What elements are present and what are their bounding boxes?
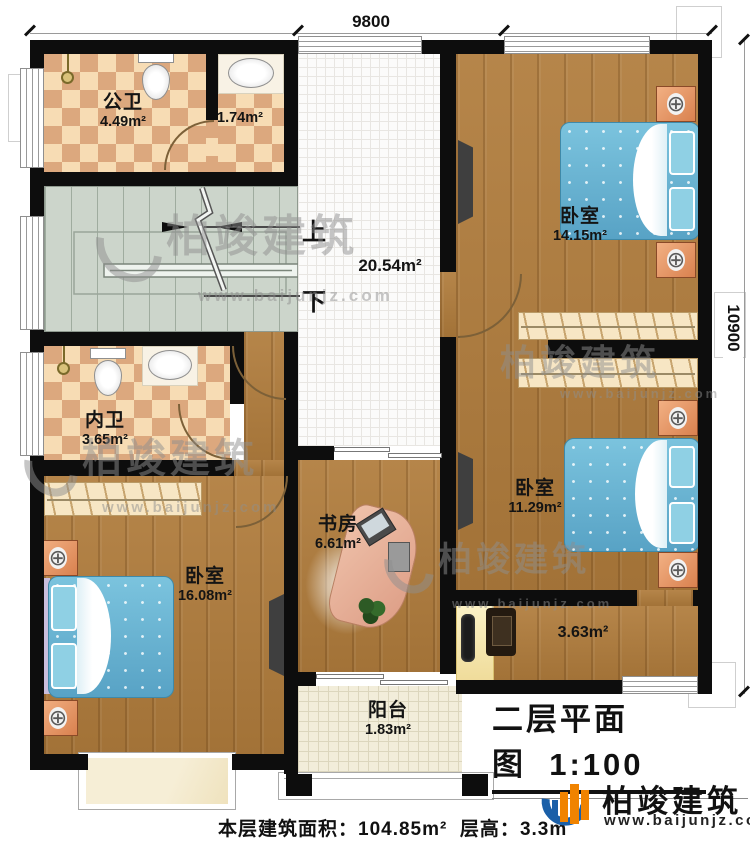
floor-area-label: 本层建筑面积：: [218, 819, 358, 840]
sink-icon: [228, 58, 274, 88]
lamp-icon: ⊕: [669, 559, 687, 581]
logo-building-icon: [581, 790, 589, 820]
dimension-right-value: 10900: [723, 295, 743, 361]
tv-icon: [269, 594, 284, 676]
floor-area-value: 104.85m²: [358, 819, 447, 840]
watermark-brand-name: 柏竣建筑: [82, 437, 258, 481]
watermark-brand-site: www.baijunjz.com: [102, 499, 279, 516]
room-label-dress-corridor: 3.63m²: [538, 624, 628, 642]
dimension-line-right: [744, 40, 745, 694]
room-area: 14.15m²: [524, 228, 636, 245]
room-label-bedroom-right: 卧室 11.29m²: [478, 478, 592, 517]
wall: [284, 332, 298, 346]
room-area: 16.08m²: [148, 588, 262, 605]
watermark-brand-site: www.baijunjz.com: [452, 596, 612, 611]
nightstand: ⊕: [656, 242, 696, 278]
room-area: 3.63m²: [538, 624, 628, 642]
blanket: [77, 578, 111, 694]
logo-building-icon: [552, 800, 558, 818]
wall: [284, 54, 298, 172]
nightstand: ⊕: [38, 700, 78, 736]
watermark: 柏竣建筑 www.baijunjz.com: [500, 334, 720, 401]
room-name: 公卫: [68, 92, 178, 114]
sink-icon: [148, 350, 192, 380]
watermark: 柏竣建筑 www.baijunjz.com: [98, 200, 393, 306]
room-area: 11.29m²: [478, 500, 592, 517]
room-label-public-bath: 公卫 4.49m²: [68, 92, 178, 131]
room-name: 书房: [282, 514, 394, 536]
wall: [30, 40, 298, 54]
wall: [422, 40, 504, 54]
pillow: [51, 643, 77, 689]
lamp-icon: ⊕: [667, 249, 685, 271]
sliding-door-leaf: [388, 453, 442, 458]
wall: [298, 446, 334, 460]
pillow: [669, 502, 695, 544]
floor-height-label: 层高：: [460, 819, 520, 840]
logo-building-icon: [570, 784, 579, 824]
lamp-icon: ⊕: [669, 407, 687, 429]
window: [298, 36, 422, 54]
brand-logo: 柏竣建筑 www.baijunjz.com: [540, 774, 750, 838]
brand-site: www.baijunjz.com: [604, 812, 750, 829]
watermark: 柏竣建筑 www.baijunjz.com: [26, 426, 279, 516]
floor-plan-page: { "dimensions": { "top": "9800", "right"…: [0, 0, 750, 843]
room-area: 6.61m²: [282, 536, 394, 553]
room-label-bedroom-left: 卧室 16.08m²: [148, 566, 262, 605]
wall: [30, 754, 88, 770]
nightstand: ⊕: [658, 400, 698, 436]
wall: [298, 672, 316, 686]
floor-doorway: [637, 590, 693, 606]
balcony-post: [286, 774, 312, 796]
dimension-tick: [24, 24, 36, 36]
shower-lamp-icon: [58, 52, 78, 88]
room-label-wash: 1.74m²: [204, 110, 276, 127]
wall: [456, 680, 622, 694]
room-name: 卧室: [478, 478, 592, 500]
bay-window-sill: [86, 758, 228, 804]
watermark-brand-name: 柏竣建筑: [438, 541, 590, 579]
window: [504, 36, 650, 54]
room-area: 1.74m²: [204, 110, 276, 127]
wall: [650, 40, 712, 54]
room-area: 1.83m²: [332, 722, 444, 739]
room-area: 4.49m²: [68, 114, 178, 131]
sliding-door-leaf: [334, 447, 390, 452]
room-label-study: 书房 6.61m²: [282, 514, 394, 553]
watermark-brand-site: www.baijunjz.com: [560, 386, 720, 401]
sliding-door-leaf: [316, 674, 384, 679]
pillow: [51, 585, 77, 631]
lamp-icon: ⊕: [667, 93, 685, 115]
wall: [30, 332, 244, 346]
sliding-door-leaf: [380, 680, 448, 685]
wall: [440, 54, 456, 272]
logo-building-icon: [560, 792, 568, 822]
nightstand: ⊕: [658, 552, 698, 588]
pillow: [669, 131, 695, 175]
dimension-line-top: [30, 33, 712, 34]
room-name: 卧室: [148, 566, 262, 588]
wall: [440, 337, 456, 674]
wall: [30, 54, 44, 68]
dimension-tick: [292, 24, 304, 36]
pillow: [669, 446, 695, 488]
balcony-post: [462, 774, 488, 796]
plant-icon: [358, 596, 386, 624]
cabinet: [486, 608, 516, 656]
window: [622, 676, 698, 694]
lamp-icon: ⊕: [49, 707, 67, 729]
wall: [30, 172, 298, 186]
lamp-icon: ⊕: [49, 547, 67, 569]
window: [20, 216, 44, 330]
tv-icon: [458, 452, 473, 530]
watermark-brand-site: www.baijunjz.com: [198, 286, 393, 306]
watermark-brand-name: 柏竣建筑: [500, 342, 660, 383]
blanket: [635, 440, 667, 548]
tv-icon: [458, 140, 473, 224]
watermark: 柏竣建筑 www.baijunjz.com: [386, 532, 612, 611]
room-label-balcony: 阳台 1.83m²: [332, 700, 444, 739]
pillow: [669, 187, 695, 231]
room-label-bedroom-top: 卧室 14.15m²: [524, 206, 636, 245]
wall: [284, 346, 298, 774]
balcony-railing-line: [284, 778, 488, 779]
room-name: 卧室: [524, 206, 636, 228]
blanket: [633, 124, 667, 236]
window: [20, 68, 44, 168]
watermark-brand-name: 柏竣建筑: [166, 212, 358, 261]
toilet-icon: [90, 348, 126, 398]
dimension-tick: [498, 24, 510, 36]
nightstand: ⊕: [38, 540, 78, 576]
shower-lamp-icon: [54, 346, 74, 380]
footer-stats: 本层建筑面积：104.85m² 层高：3.3m: [218, 814, 567, 841]
room-name: 阳台: [332, 700, 444, 722]
floor-doorway: [440, 272, 456, 337]
nightstand: ⊕: [656, 86, 696, 122]
bench: [461, 614, 475, 662]
dimension-top-value: 9800: [338, 12, 404, 32]
